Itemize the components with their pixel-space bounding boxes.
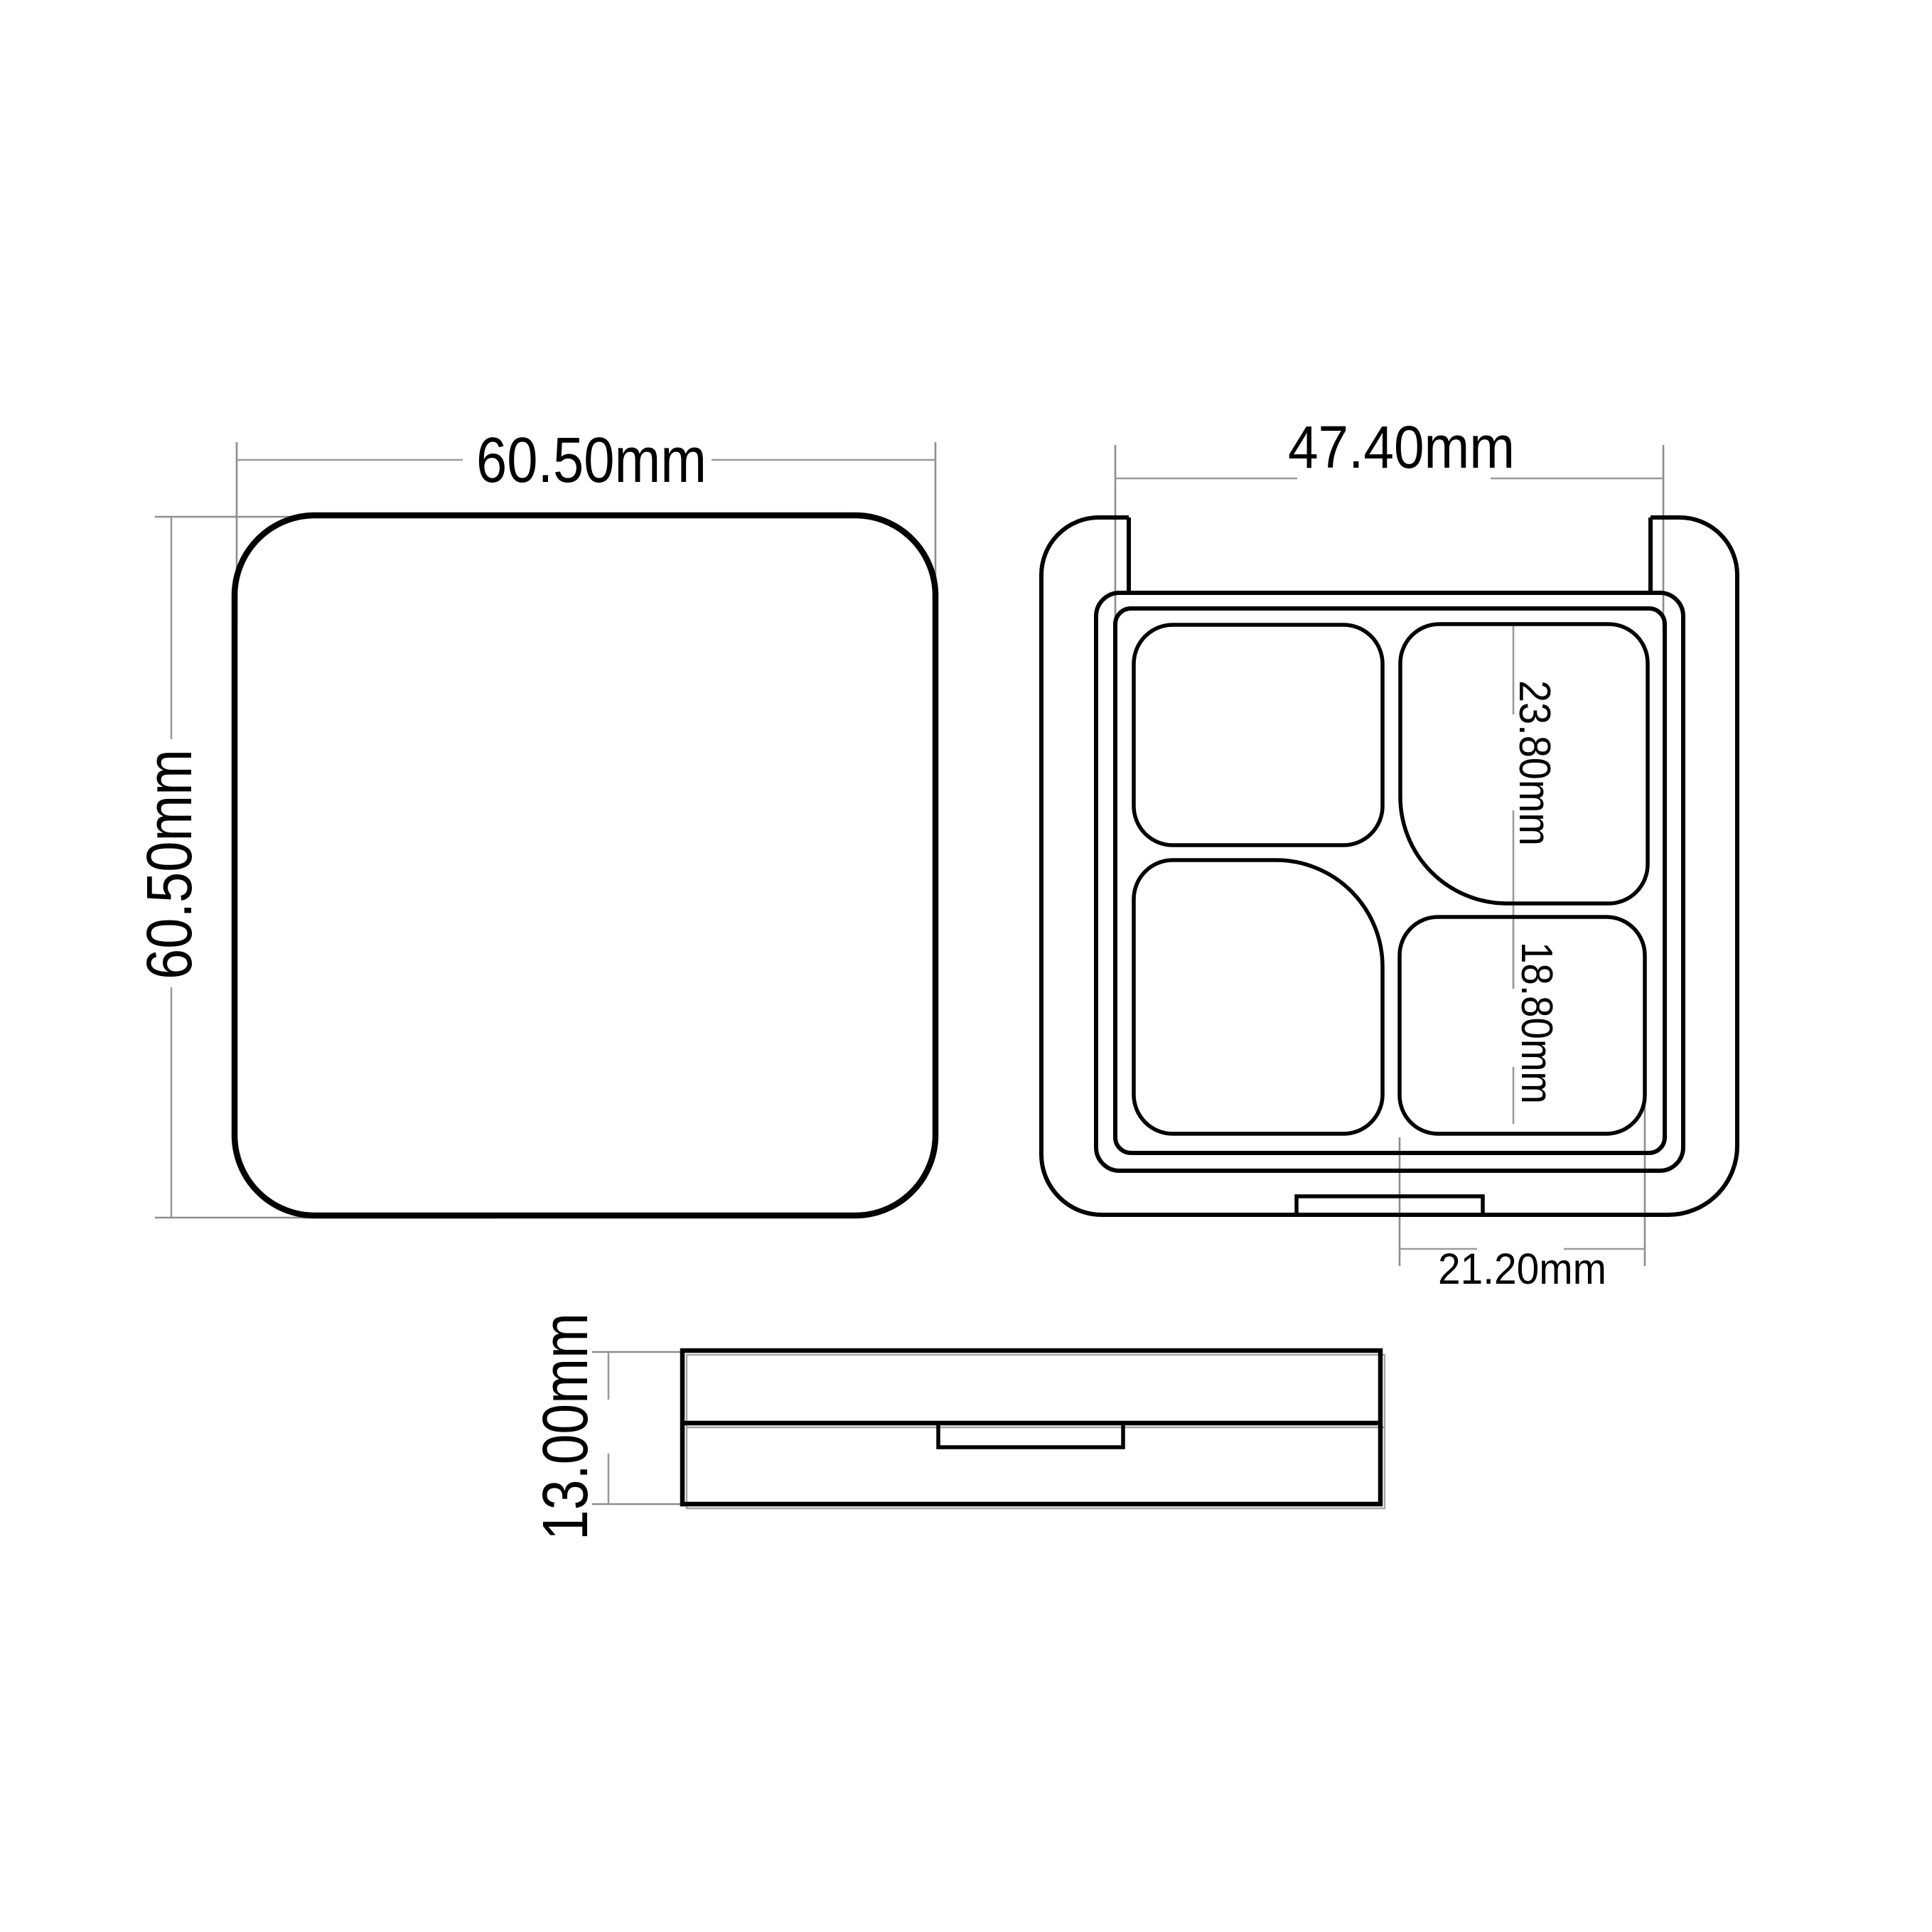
svg-text:60.50mm: 60.50mm [476, 425, 707, 496]
svg-text:13.00mm: 13.00mm [530, 1313, 601, 1540]
svg-text:18.80mm: 18.80mm [1512, 942, 1561, 1104]
svg-text:47.40mm: 47.40mm [1288, 414, 1515, 481]
svg-text:60.50mm: 60.50mm [134, 749, 205, 980]
svg-text:21.20mm: 21.20mm [1438, 1245, 1606, 1293]
svg-text:23.80mm: 23.80mm [1510, 680, 1559, 846]
